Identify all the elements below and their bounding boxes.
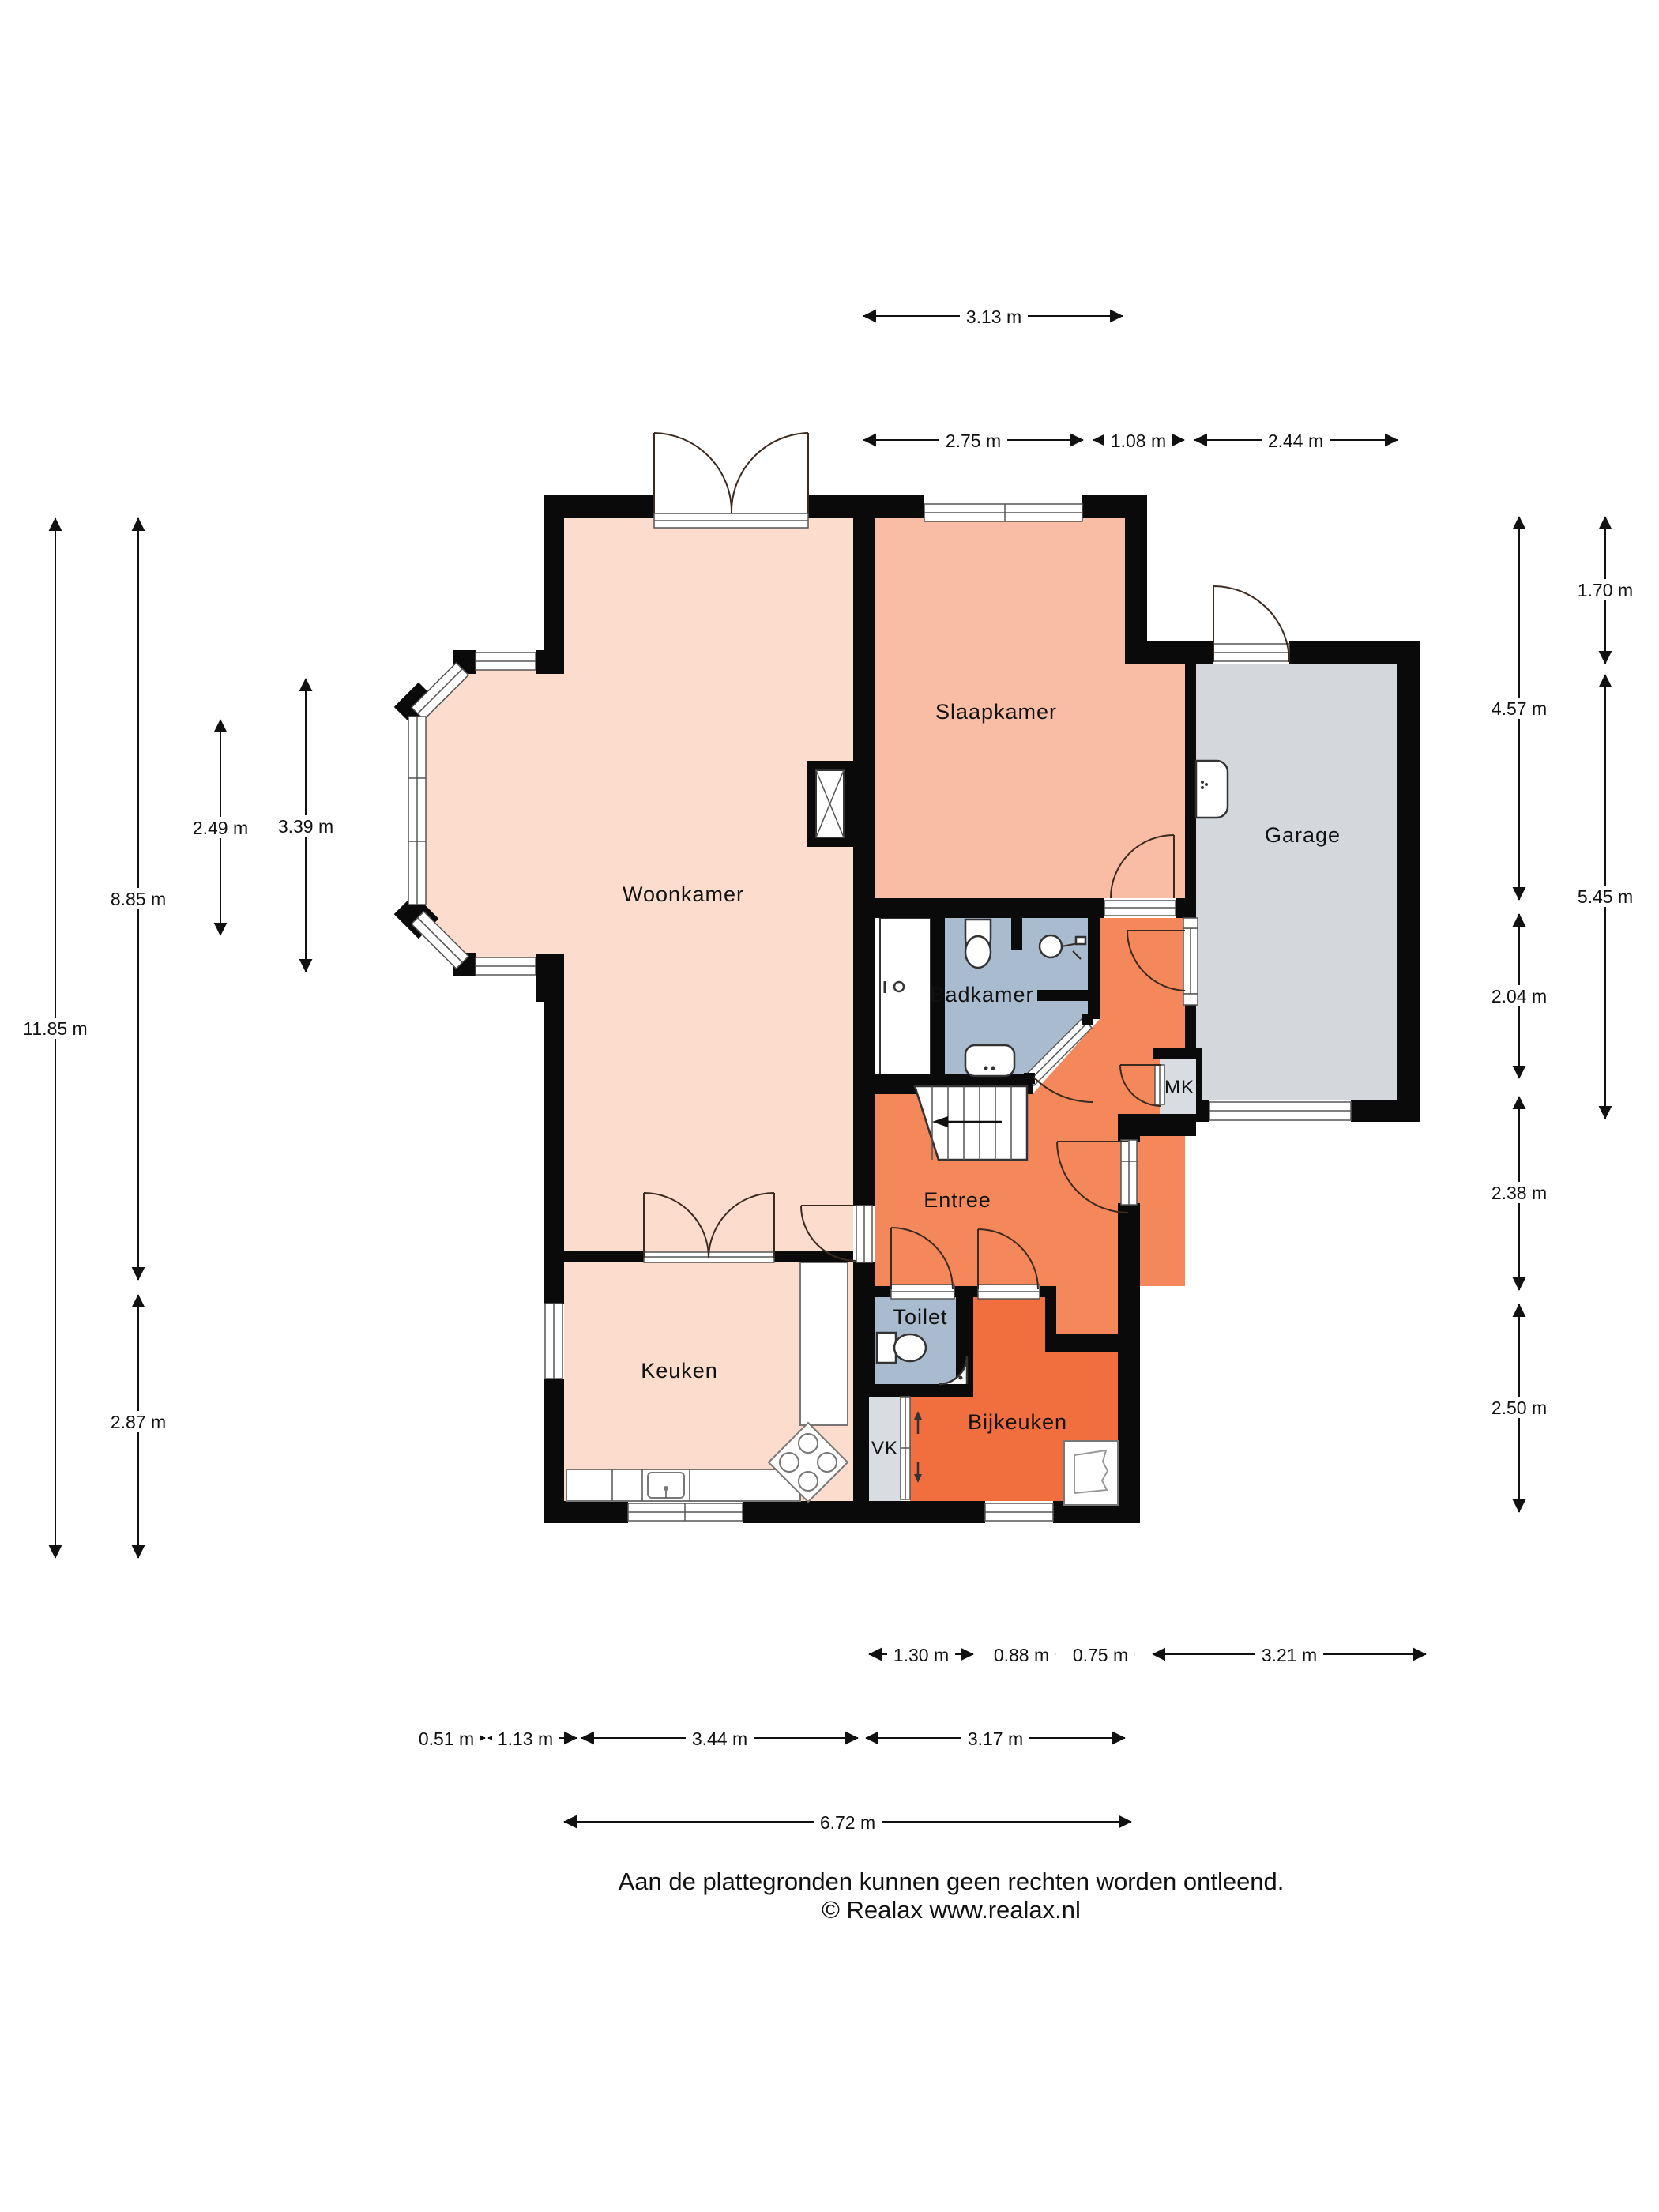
svg-text:3.17 m: 3.17 m: [968, 1729, 1023, 1749]
svg-text:2.50 m: 2.50 m: [1492, 1398, 1547, 1418]
toilet-wc-icon: [877, 1333, 926, 1363]
footer-disclaimer: Aan de plattegronden kunnen geen rechten…: [619, 1868, 1285, 1895]
door-french-woonkamer: [654, 433, 808, 528]
svg-text:5.45 m: 5.45 m: [1578, 886, 1633, 907]
dim-left-2: 8.85 m: [103, 518, 173, 1280]
svg-text:3.39 m: 3.39 m: [278, 816, 333, 837]
dim-bottom-1: 1.30 m: [869, 1644, 973, 1665]
svg-text:0.51 m: 0.51 m: [419, 1729, 474, 1749]
stairs: [915, 1086, 1027, 1160]
svg-text:8.85 m: 8.85 m: [111, 889, 166, 909]
mk-door-band: [1155, 1065, 1164, 1104]
svg-text:2.75 m: 2.75 m: [946, 431, 1001, 451]
dim-top-3: 1.08 m: [1093, 430, 1184, 451]
dim-left-3: 2.87 m: [103, 1295, 173, 1558]
dim-right-5: 1.70 m: [1571, 517, 1640, 664]
svg-text:2.38 m: 2.38 m: [1492, 1183, 1547, 1203]
svg-text:2.44 m: 2.44 m: [1268, 431, 1323, 451]
front-door-band: [1121, 1140, 1137, 1205]
dim-right-1: 4.57 m: [1484, 517, 1554, 900]
label-keuken: Keuken: [641, 1359, 718, 1382]
label-toilet: Toilet: [893, 1305, 947, 1329]
label-garage: Garage: [1265, 823, 1341, 847]
room-closet: [880, 918, 931, 1074]
svg-text:11.85 m: 11.85 m: [23, 1018, 87, 1039]
dim-right-2: 2.04 m: [1484, 914, 1554, 1078]
window-keuken-bottom: [628, 1503, 743, 1521]
label-woonkamer: Woonkamer: [623, 882, 744, 906]
window-slaapkamer: [924, 504, 1082, 521]
garage-boiler: [1196, 761, 1228, 818]
bijkeuken-tub: [1064, 1441, 1118, 1505]
dim-top-4: 2.44 m: [1194, 430, 1398, 451]
window-keuken-left: [545, 1303, 562, 1379]
label-entree: Entree: [924, 1188, 991, 1212]
dim-bottom-2: 0.88 m: [987, 1644, 1055, 1665]
dim-top-2: 2.75 m: [863, 430, 1083, 451]
window-bay-bottom: [476, 957, 536, 975]
svg-text:1.70 m: 1.70 m: [1578, 580, 1633, 600]
dim-bottom-3: 0.75 m: [1066, 1644, 1134, 1665]
chimney: [807, 761, 853, 847]
svg-text:3.44 m: 3.44 m: [692, 1729, 747, 1749]
label-mk: MK: [1164, 1077, 1194, 1098]
svg-text:6.72 m: 6.72 m: [820, 1812, 875, 1833]
window-bay-top: [476, 653, 536, 670]
dim-left-5: 3.39 m: [271, 679, 340, 972]
svg-text:3.13 m: 3.13 m: [966, 307, 1021, 327]
footer: Aan de plattegronden kunnen geen rechten…: [619, 1868, 1285, 1924]
garage-door-band: [1183, 918, 1198, 1005]
window-bay-left: [408, 717, 426, 905]
vk-door-band: [901, 1397, 910, 1499]
svg-text:0.75 m: 0.75 m: [1073, 1645, 1128, 1665]
label-vk: VK: [871, 1438, 898, 1459]
dim-bottom-6: 1.13 m: [488, 1728, 577, 1749]
footer-copyright: © Realax www.realax.nl: [822, 1896, 1081, 1924]
window-bijkeuken-bottom: [985, 1503, 1053, 1521]
dim-right-4: 2.50 m: [1484, 1304, 1554, 1512]
svg-text:2.49 m: 2.49 m: [193, 818, 248, 838]
svg-text:2.04 m: 2.04 m: [1492, 986, 1547, 1006]
svg-text:3.21 m: 3.21 m: [1262, 1645, 1317, 1665]
svg-text:1.08 m: 1.08 m: [1111, 431, 1166, 451]
dim-left-4: 2.49 m: [186, 720, 255, 935]
kitchen-counter-right: [800, 1262, 848, 1425]
label-badkamer: Badkamer: [930, 983, 1033, 1006]
dim-bottom-4: 3.21 m: [1153, 1644, 1426, 1665]
floorplan-svg: Woonkamer Slaapkamer Garage Badkamer Ent…: [0, 0, 1659, 2212]
dim-top-1: 3.13 m: [863, 306, 1123, 327]
dim-bottom-8: 3.17 m: [866, 1728, 1125, 1749]
room-garage: [1196, 664, 1397, 1100]
washbasin-badkamer-icon: [965, 1045, 1014, 1076]
dim-bottom-7: 3.44 m: [581, 1728, 858, 1749]
window-garage-bottom: [1209, 1102, 1351, 1120]
dim-right-6: 5.45 m: [1571, 675, 1640, 1119]
dim-left-1: 11.85 m: [17, 518, 94, 1558]
floorplan-page: Woonkamer Slaapkamer Garage Badkamer Ent…: [0, 0, 1659, 2212]
svg-text:2.87 m: 2.87 m: [111, 1412, 166, 1432]
toilet-badkamer-icon: [965, 920, 991, 968]
label-bijkeuken: Bijkeuken: [968, 1410, 1067, 1434]
svg-text:4.57 m: 4.57 m: [1492, 698, 1547, 719]
dim-right-3: 2.38 m: [1484, 1097, 1554, 1290]
svg-text:1.13 m: 1.13 m: [498, 1729, 553, 1749]
dim-bottom-9: 6.72 m: [564, 1811, 1131, 1833]
svg-text:1.30 m: 1.30 m: [893, 1645, 949, 1665]
dim-bottom-5: 0.51 m: [413, 1728, 485, 1749]
svg-text:0.88 m: 0.88 m: [994, 1645, 1049, 1665]
room-slaapkamer-ext: [1125, 664, 1185, 898]
door-garage-exterior: [1213, 586, 1289, 662]
kitchen-counter: [566, 1469, 800, 1501]
label-slaapkamer: Slaapkamer: [935, 700, 1057, 724]
